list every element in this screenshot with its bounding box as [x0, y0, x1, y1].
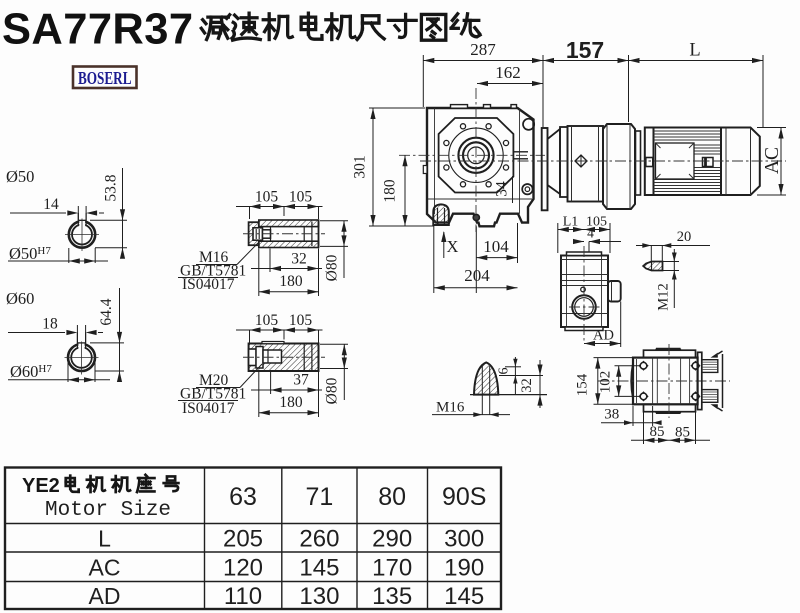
svg-text:53.8: 53.8 — [103, 174, 120, 201]
svg-text:104: 104 — [483, 237, 509, 256]
svg-text:287: 287 — [470, 40, 496, 59]
svg-text:110: 110 — [224, 583, 262, 610]
svg-text:157: 157 — [566, 37, 604, 63]
svg-text:32: 32 — [519, 378, 535, 393]
svg-text:154: 154 — [575, 373, 591, 396]
svg-text:IS04017: IS04017 — [182, 276, 235, 293]
svg-text:260: 260 — [299, 526, 339, 553]
svg-text:IS04017: IS04017 — [182, 400, 235, 417]
svg-text:L1: L1 — [563, 215, 579, 230]
svg-text:105: 105 — [255, 189, 279, 206]
svg-text:BOSERL: BOSERL — [78, 68, 132, 88]
svg-text:AC: AC — [762, 147, 783, 174]
svg-text:145: 145 — [299, 554, 339, 581]
svg-text:AD: AD — [89, 583, 121, 609]
svg-text:4: 4 — [587, 226, 594, 241]
svg-text:85: 85 — [650, 424, 665, 440]
svg-text:301: 301 — [352, 155, 369, 178]
svg-text:105: 105 — [289, 189, 313, 206]
svg-text:105: 105 — [289, 312, 313, 329]
svg-text:162: 162 — [495, 63, 521, 82]
svg-text:37: 37 — [293, 372, 309, 389]
svg-text:205: 205 — [223, 526, 263, 553]
svg-text:18: 18 — [42, 316, 58, 333]
svg-text:Ø50: Ø50 — [6, 167, 34, 186]
svg-text:85: 85 — [675, 425, 690, 441]
svg-text:Ø60: Ø60 — [6, 289, 34, 308]
svg-text:34: 34 — [494, 181, 511, 197]
svg-text:M12: M12 — [656, 283, 672, 310]
svg-text:180: 180 — [279, 273, 303, 290]
svg-text:Motor Size: Motor Size — [45, 499, 171, 522]
svg-text:L: L — [98, 526, 111, 552]
svg-text:290: 290 — [372, 526, 412, 553]
svg-text:130: 130 — [299, 583, 339, 610]
svg-text:300: 300 — [444, 526, 484, 553]
svg-text:80: 80 — [378, 483, 406, 511]
svg-text:120: 120 — [223, 554, 263, 581]
svg-text:L: L — [689, 41, 700, 61]
svg-text:102: 102 — [598, 371, 614, 394]
svg-text:Ø50H7: Ø50H7 — [9, 244, 51, 263]
svg-text:14: 14 — [43, 196, 59, 213]
svg-text:90S: 90S — [442, 483, 486, 511]
svg-text:135: 135 — [372, 583, 412, 610]
svg-text:AC: AC — [89, 554, 121, 580]
svg-text:Ø80: Ø80 — [324, 254, 341, 281]
svg-text:20: 20 — [677, 229, 692, 245]
svg-text:63: 63 — [229, 483, 257, 511]
svg-text:170: 170 — [372, 554, 412, 581]
svg-text:SA77R37: SA77R37 — [2, 6, 193, 54]
svg-text:X: X — [447, 237, 459, 256]
svg-text:180: 180 — [279, 394, 303, 411]
svg-text:AD: AD — [593, 328, 614, 344]
svg-text:Ø60H7: Ø60H7 — [10, 362, 52, 381]
svg-text:105: 105 — [255, 312, 279, 329]
svg-text:YE2: YE2 — [22, 475, 60, 497]
svg-text:190: 190 — [444, 554, 484, 581]
svg-text:145: 145 — [444, 583, 484, 610]
svg-text:204: 204 — [464, 266, 490, 285]
svg-text:M16: M16 — [436, 400, 465, 416]
svg-text:6: 6 — [497, 368, 512, 375]
svg-text:Ø80: Ø80 — [324, 377, 341, 404]
svg-text:64.4: 64.4 — [98, 298, 115, 325]
svg-text:180: 180 — [382, 179, 399, 203]
svg-text:32: 32 — [291, 251, 307, 268]
svg-text:71: 71 — [305, 483, 333, 511]
svg-text:38: 38 — [604, 407, 619, 423]
